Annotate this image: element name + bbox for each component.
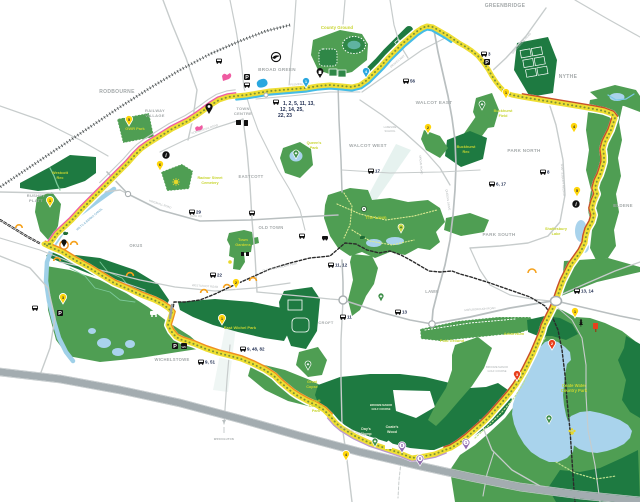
svg-text:WALCOT WEST: WALCOT WEST xyxy=(349,143,387,148)
svg-text:Arboretum: Arboretum xyxy=(504,331,525,336)
svg-text:9, 51: 9, 51 xyxy=(205,360,216,365)
svg-text:13, 14: 13, 14 xyxy=(581,289,594,294)
svg-text:County Ground: County Ground xyxy=(321,25,354,30)
svg-text:♣: ♣ xyxy=(548,415,551,420)
svg-text:P: P xyxy=(58,311,62,317)
svg-text:Coate's: Coate's xyxy=(386,425,399,429)
svg-text:Great: Great xyxy=(307,380,318,384)
svg-text:♣: ♣ xyxy=(380,293,383,298)
svg-text:17: 17 xyxy=(375,169,381,174)
svg-text:WALCOT EAST: WALCOT EAST xyxy=(416,100,453,105)
svg-text:VILLAGE: VILLAGE xyxy=(145,113,164,118)
svg-text:Gardens: Gardens xyxy=(235,243,250,247)
svg-text:Cemetery: Cemetery xyxy=(201,181,219,185)
svg-text:P: P xyxy=(485,60,489,66)
svg-text:Wood: Wood xyxy=(387,430,397,434)
svg-text:Field: Field xyxy=(499,114,509,118)
svg-text:Polo Ground: Polo Ground xyxy=(440,338,465,343)
svg-text:SCHOOL: SCHOOL xyxy=(385,129,397,133)
svg-text:RODBOURNE: RODBOURNE xyxy=(99,89,135,95)
svg-text:♣: ♣ xyxy=(374,438,377,443)
svg-text:GOLF COURSE: GOLF COURSE xyxy=(371,407,390,411)
svg-text:♣: ♣ xyxy=(295,150,298,155)
svg-text:Country Park: Country Park xyxy=(561,388,588,393)
svg-text:BROOME MANOR: BROOME MANOR xyxy=(486,365,508,369)
svg-text:OKUS: OKUS xyxy=(129,243,142,248)
svg-text:11, 12: 11, 12 xyxy=(335,263,348,268)
svg-text:LAWN: LAWN xyxy=(425,289,439,294)
svg-text:Rec: Rec xyxy=(463,150,470,154)
svg-text:GOLF COURSE: GOLF COURSE xyxy=(488,369,507,373)
svg-text:Lake: Lake xyxy=(552,232,561,236)
svg-text:Radnor Street: Radnor Street xyxy=(197,176,223,180)
svg-text:Day's: Day's xyxy=(361,427,370,431)
svg-text:11: 11 xyxy=(347,315,352,320)
svg-text:Croft: Croft xyxy=(311,399,321,403)
svg-text:OLD TOWN: OLD TOWN xyxy=(258,225,283,230)
svg-text:ELDENE: ELDENE xyxy=(613,203,633,208)
svg-text:♣: ♣ xyxy=(481,101,484,106)
svg-text:BROAD GREEN: BROAD GREEN xyxy=(258,67,296,72)
svg-text:EASTCOTT: EASTCOTT xyxy=(239,174,264,179)
svg-text:GREENBRIDGE: GREENBRIDGE xyxy=(485,3,526,9)
svg-text:PARK NORTH: PARK NORTH xyxy=(507,148,541,153)
svg-text:♣: ♣ xyxy=(400,225,403,230)
svg-text:P: P xyxy=(173,344,177,350)
svg-text:P: P xyxy=(245,75,249,81)
svg-text:Park: Park xyxy=(310,146,319,150)
svg-text:Shaftesbury: Shaftesbury xyxy=(545,227,568,231)
svg-text:Park: Park xyxy=(312,409,321,413)
svg-text:22, 23: 22, 23 xyxy=(278,113,292,119)
svg-text:29: 29 xyxy=(196,210,202,215)
svg-text:Rec: Rec xyxy=(57,176,64,180)
svg-text:wc: wc xyxy=(182,344,187,349)
svg-text:Country: Country xyxy=(309,404,324,408)
svg-text:CROFT: CROFT xyxy=(318,320,334,325)
svg-text:22: 22 xyxy=(217,273,223,278)
svg-text:GWR Park: GWR Park xyxy=(125,126,145,131)
svg-text:13: 13 xyxy=(402,310,408,315)
svg-text:WROUGHTON: WROUGHTON xyxy=(214,437,234,441)
svg-text:LAKESIDE: LAKESIDE xyxy=(384,125,397,129)
svg-text:BROOME MANOR: BROOME MANOR xyxy=(370,403,392,407)
svg-text:Buckhurst: Buckhurst xyxy=(457,145,477,149)
svg-text:Westcott: Westcott xyxy=(52,171,69,175)
svg-text:WICHELSTOWE: WICHELSTOWE xyxy=(154,357,189,362)
svg-text:Copse: Copse xyxy=(306,385,318,389)
svg-text:♣: ♣ xyxy=(307,361,310,366)
svg-text:Queen's: Queen's xyxy=(307,141,322,145)
svg-text:NYTHE: NYTHE xyxy=(559,74,578,80)
svg-text:East Wichel Park: East Wichel Park xyxy=(224,325,257,330)
svg-text:Buckhurst: Buckhurst xyxy=(494,109,514,113)
svg-text:CENTRE: CENTRE xyxy=(234,111,252,116)
svg-text:PARK SOUTH: PARK SOUTH xyxy=(482,232,515,237)
svg-text:56: 56 xyxy=(410,79,416,84)
svg-text:Town: Town xyxy=(238,238,248,242)
svg-text:9, 48, 82: 9, 48, 82 xyxy=(247,347,265,352)
svg-text:6, 17: 6, 17 xyxy=(496,182,507,187)
svg-text:The Lawn: The Lawn xyxy=(365,215,386,220)
svg-text:PLATT: PLATT xyxy=(29,198,43,203)
